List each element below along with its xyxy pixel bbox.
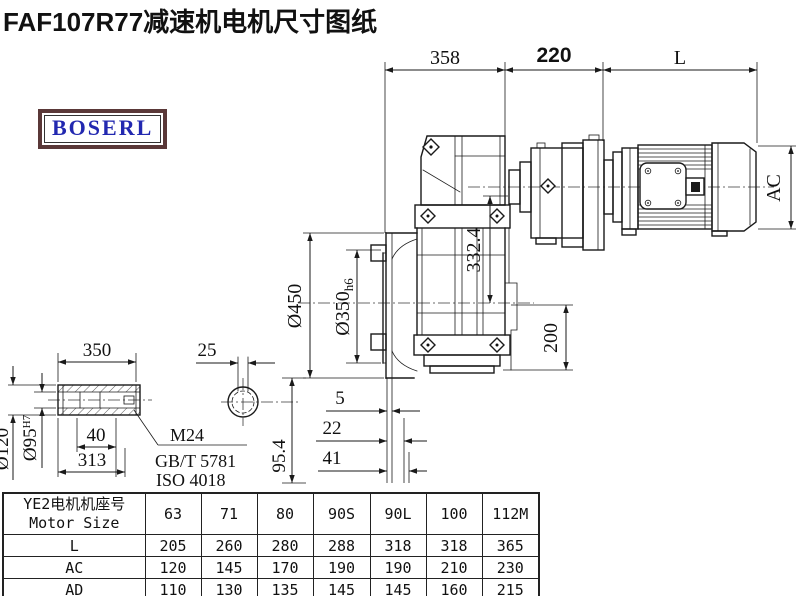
dim-d120-label: Ø120 (0, 428, 13, 470)
table-col-90L: 90L (370, 493, 426, 535)
dim-332-label: 332.4 (463, 228, 485, 273)
dim-d450-label: Ø450 (284, 284, 306, 328)
row-label-AC: AC (3, 557, 145, 579)
table-cell: 260 (201, 535, 257, 557)
centerlines (48, 187, 774, 426)
dim-d95h7-label: Ø95H7 (20, 414, 41, 461)
dim-AC-label: AC (763, 174, 785, 202)
drawing-sheet: FAF107R77减速机电机尺寸图纸 BOSERL 358 220 L (0, 0, 800, 596)
table-row-L: L 205 260 280 288 318 318 365 (3, 535, 539, 557)
motor-size-table: YE2电机机座号 Motor Size 63 71 80 90S 90L 100… (2, 492, 540, 596)
table-cell: 120 (145, 557, 201, 579)
spec-table-wrap: YE2电机机座号 Motor Size 63 71 80 90S 90L 100… (2, 492, 540, 596)
table-header-motor-size: YE2电机机座号 Motor Size (3, 493, 145, 535)
note-iso4018: ISO 4018 (156, 470, 226, 490)
dim-220-label: 220 (536, 44, 571, 67)
table-col-71: 71 (201, 493, 257, 535)
table-cell: 288 (313, 535, 370, 557)
nameplate-block (691, 182, 700, 192)
dim-d350h6-label: Ø350h6 (332, 278, 356, 336)
table-cell: 160 (426, 579, 482, 596)
table-cell: 135 (257, 579, 313, 596)
table-col-112M: 112M (482, 493, 539, 535)
table-cell: 145 (313, 579, 370, 596)
row-label-AD: AD (3, 579, 145, 596)
table-cell: 280 (257, 535, 313, 557)
row-label-L: L (3, 535, 145, 557)
table-cell: 205 (145, 535, 201, 557)
table-row-AC: AC 120 145 170 190 190 210 230 (3, 557, 539, 579)
note-m24: M24 (170, 425, 204, 445)
gearbox-body (371, 136, 517, 378)
table-cell: 170 (257, 557, 313, 579)
table-cell: 230 (482, 557, 539, 579)
table-col-100: 100 (426, 493, 482, 535)
table-cell: 190 (370, 557, 426, 579)
dim-22-label: 22 (323, 418, 342, 439)
table-cell: 190 (313, 557, 370, 579)
dim-40-label: 40 (87, 425, 106, 446)
table-col-63: 63 (145, 493, 201, 535)
table-cell: 145 (370, 579, 426, 596)
table-header-row: YE2电机机座号 Motor Size 63 71 80 90S 90L 100… (3, 493, 539, 535)
table-cell: 145 (201, 557, 257, 579)
dim-200-label: 200 (540, 323, 562, 353)
motor (604, 143, 756, 236)
dim-L-label: L (674, 47, 686, 69)
table-cell: 365 (482, 535, 539, 557)
dim-5-label: 5 (335, 388, 345, 409)
dim-41-label: 41 (323, 448, 342, 469)
table-cell: 130 (201, 579, 257, 596)
input-gear-unit (509, 135, 604, 250)
dim-358-label: 358 (430, 47, 460, 69)
technical-drawing: 358 220 L (0, 0, 800, 492)
dim-25-label: 25 (198, 340, 217, 361)
dim-350-label: 350 (83, 340, 112, 361)
dim-954-label: 95.4 (269, 439, 290, 473)
table-col-80: 80 (257, 493, 313, 535)
table-cell: 318 (370, 535, 426, 557)
dim-313-label: 313 (78, 450, 107, 471)
table-cell: 215 (482, 579, 539, 596)
table-cell: 110 (145, 579, 201, 596)
motor-cover-pad (640, 163, 686, 209)
table-col-90S: 90S (313, 493, 370, 535)
table-row-AD: AD 110 130 135 145 145 160 215 (3, 579, 539, 596)
table-cell: 318 (426, 535, 482, 557)
note-gbt5781: GB/T 5781 (155, 451, 236, 471)
table-cell: 210 (426, 557, 482, 579)
